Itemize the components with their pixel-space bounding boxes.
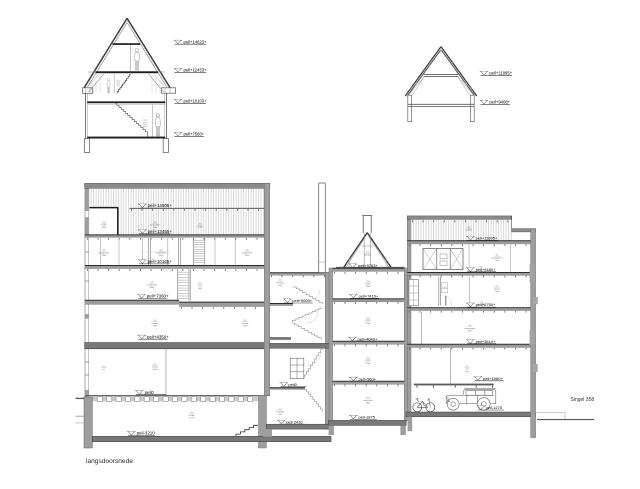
svg-text:12m²: 12m² (159, 254, 164, 257)
svg-text:zolder: zolder (365, 282, 371, 285)
svg-text:kamer: kamer (365, 359, 371, 362)
svg-text:peil+5005+: peil+5005+ (292, 298, 312, 303)
svg-text:peil+4350+: peil+4350+ (147, 334, 169, 339)
svg-text:zolder: zolder (197, 225, 203, 228)
svg-text:peil+7560+: peil+7560+ (184, 131, 205, 136)
svg-text:peil+7360+: peil+7360+ (147, 294, 169, 299)
svg-text:peil+14623+: peil+14623+ (184, 39, 208, 44)
svg-text:peil+9763+: peil+9763+ (358, 263, 378, 268)
svg-text:slaapkamer: slaapkamer (156, 251, 167, 254)
svg-text:21m²: 21m² (495, 290, 500, 293)
svg-text:slaapkamer: slaapkamer (492, 256, 503, 259)
svg-text:18m²: 18m² (366, 402, 371, 405)
svg-text:peil+4040+: peil+4040+ (358, 336, 378, 341)
svg-text:peil0: peil0 (145, 390, 155, 395)
svg-text:6m²: 6m² (198, 287, 202, 290)
svg-text:kantoor: kantoor (242, 322, 249, 325)
svg-text:Singel 358: Singel 358 (571, 397, 595, 403)
svg-text:21m²: 21m² (243, 325, 248, 328)
svg-text:souterrain: souterrain (363, 399, 373, 402)
svg-text:peil+9408+: peil+9408+ (489, 99, 510, 104)
svg-text:peil+14505+: peil+14505+ (148, 203, 173, 208)
svg-text:20m²: 20m² (366, 362, 371, 365)
svg-text:peil+11895+: peil+11895+ (476, 235, 498, 240)
svg-text:zolder: zolder (101, 223, 107, 226)
svg-text:berging: berging (277, 410, 285, 413)
svg-text:19m²: 19m² (366, 285, 371, 288)
svg-text:52m²: 52m² (153, 325, 158, 328)
svg-text:peil-1875: peil-1875 (359, 415, 376, 420)
svg-text:langsdoorsnede: langsdoorsnede (86, 458, 133, 465)
svg-text:peil+11095+: peil+11095+ (489, 70, 512, 75)
svg-text:kelder: kelder (189, 414, 195, 417)
svg-text:vliering: vliering (364, 253, 372, 256)
svg-text:20m²: 20m² (366, 322, 371, 325)
svg-text:peil+1080+: peil+1080+ (483, 376, 503, 381)
svg-text:5m²: 5m² (278, 284, 282, 287)
svg-text:entree: entree (152, 365, 159, 368)
svg-text:7m²: 7m² (278, 413, 282, 416)
svg-text:peil0: peil0 (288, 382, 297, 387)
svg-text:wc: wc (103, 369, 106, 371)
svg-text:46m²: 46m² (153, 368, 158, 371)
svg-text:38m²: 38m² (150, 286, 155, 289)
svg-text:peil+6750+: peil+6750+ (476, 302, 496, 307)
svg-text:slaapkamer: slaapkamer (242, 251, 253, 254)
svg-text:14m²: 14m² (102, 254, 107, 257)
svg-text:peil+3610+: peil+3610+ (476, 339, 496, 344)
svg-text:8m²: 8m² (102, 226, 106, 229)
svg-text:17m²: 17m² (495, 259, 500, 262)
svg-text:kamer: kamer (365, 319, 371, 322)
svg-text:overloop: overloop (276, 281, 285, 284)
svg-text:9m²: 9m² (465, 370, 469, 373)
svg-text:peil+560+: peil+560+ (359, 376, 377, 381)
svg-text:peil+9480+: peil+9480+ (476, 267, 496, 272)
svg-text:117m²: 117m² (189, 417, 195, 420)
svg-text:peil-3210: peil-3210 (137, 431, 156, 436)
svg-text:zolder: zolder (466, 228, 472, 231)
svg-text:woonkamer: woonkamer (147, 283, 158, 286)
svg-text:peil+13455+: peil+13455+ (148, 229, 173, 234)
svg-text:bergzolder: bergzolder (150, 223, 160, 226)
svg-text:slaapkamer: slaapkamer (99, 251, 110, 254)
svg-text:peil+7410+: peil+7410+ (359, 293, 379, 298)
svg-text:woonkamer: woonkamer (465, 327, 476, 330)
svg-text:peil+10165+: peil+10165+ (148, 259, 173, 264)
svg-text:peil+12453+: peil+12453+ (184, 67, 208, 72)
svg-text:peil+10103+: peil+10103+ (184, 98, 208, 103)
svg-text:15m²: 15m² (245, 254, 250, 257)
svg-text:kamer: kamer (494, 287, 500, 290)
svg-text:48m²: 48m² (468, 330, 473, 333)
svg-text:kantoor: kantoor (152, 322, 159, 325)
svg-text:peil-2410: peil-2410 (286, 419, 303, 424)
svg-text:peil-1275: peil-1275 (486, 405, 503, 410)
